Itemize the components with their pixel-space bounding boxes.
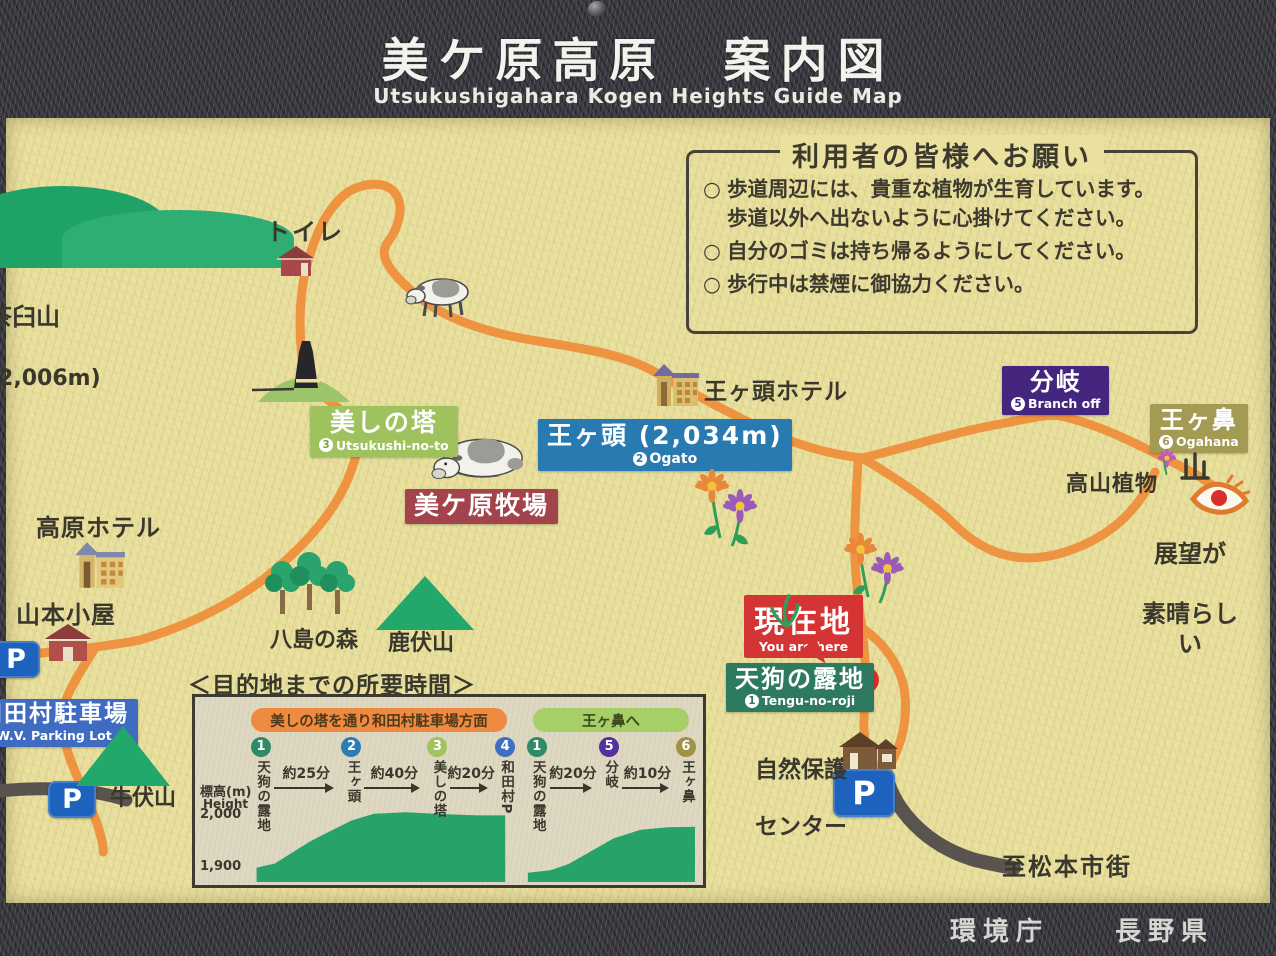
sign-title: 美ケ原高原 案内図: [0, 22, 1276, 91]
credit-text: 環境庁 長野県: [950, 911, 1214, 948]
map-sign-board: [6, 118, 1270, 903]
sign-subtitle: Utsukushigahara Kogen Heights Guide Map: [0, 84, 1276, 108]
bolt-icon: [588, 1, 606, 17]
frame-right-edge: [1270, 118, 1276, 903]
